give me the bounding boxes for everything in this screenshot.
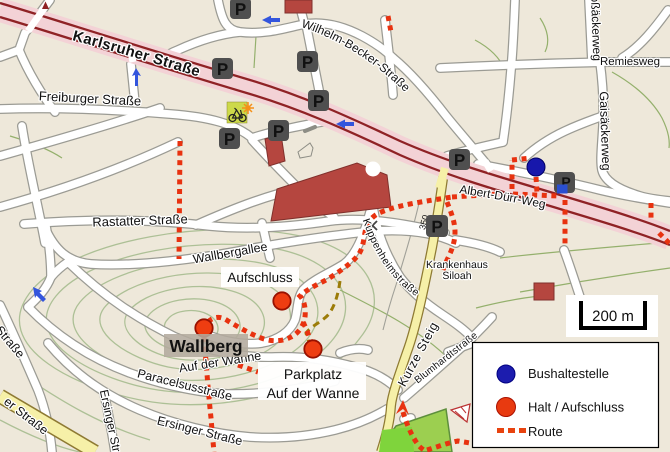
svg-text:Remiesweg: Remiesweg xyxy=(600,56,660,68)
svg-text:P: P xyxy=(224,130,235,149)
svg-text:Roßäckerweg: Roßäckerweg xyxy=(588,0,605,61)
svg-text:Wallberg: Wallberg xyxy=(169,336,242,356)
svg-text:P: P xyxy=(454,151,465,170)
svg-text:200 m: 200 m xyxy=(592,308,634,325)
svg-text:P: P xyxy=(273,122,284,141)
svg-text:Aufschluss: Aufschluss xyxy=(227,270,293,285)
svg-text:Halt / Aufschluss: Halt / Aufschluss xyxy=(528,400,625,415)
svg-text:P: P xyxy=(217,60,228,79)
svg-text:Siloah: Siloah xyxy=(442,270,471,282)
svg-text:P: P xyxy=(302,53,313,72)
svg-text:P: P xyxy=(235,0,246,19)
svg-text:Route: Route xyxy=(528,424,563,439)
svg-text:P: P xyxy=(313,92,324,111)
svg-text:P: P xyxy=(431,218,442,237)
svg-text:Parkplatz: Parkplatz xyxy=(284,366,342,382)
svg-text:Auf der Wanne: Auf der Wanne xyxy=(267,385,360,401)
svg-text:Gaisäckerweg: Gaisäckerweg xyxy=(597,91,614,171)
svg-text:Bushaltestelle: Bushaltestelle xyxy=(528,366,609,381)
